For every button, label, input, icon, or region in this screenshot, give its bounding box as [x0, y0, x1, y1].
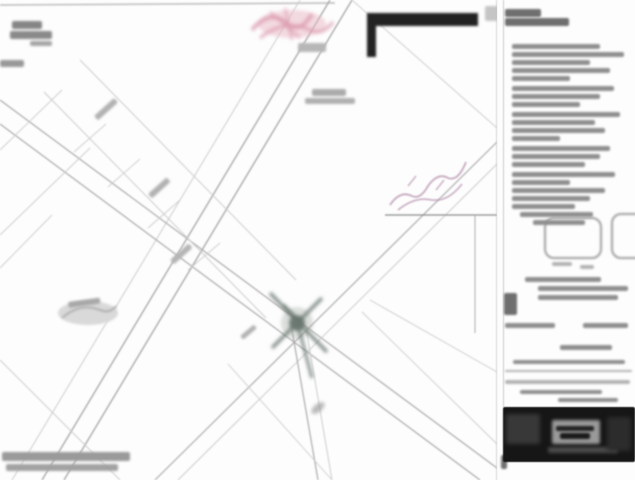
note-text-line [580, 265, 594, 269]
note-text-line [512, 154, 600, 159]
note-text-line [538, 286, 628, 291]
map-label-smudge [10, 31, 52, 39]
pink-annotation-scribble [390, 162, 466, 210]
map-line [44, 92, 266, 318]
map-line [0, 215, 52, 268]
map-line [0, 100, 497, 468]
note-text-line [520, 212, 593, 217]
map-line [0, 360, 120, 480]
note-text-line [583, 323, 628, 328]
note-text-line [513, 360, 625, 364]
map-line [0, 90, 62, 150]
north-corner-bracket [367, 13, 478, 57]
map-line [74, 124, 106, 152]
detail-outline-right [612, 214, 635, 258]
note-text-line [538, 295, 618, 300]
map-line [64, 0, 352, 480]
note-text-line [512, 172, 615, 177]
note-text-line [512, 120, 595, 125]
map-line [0, 3, 335, 5]
map-label-smudge [312, 89, 346, 96]
detail-outline-left [545, 218, 601, 258]
map-label-smudge [240, 324, 257, 339]
note-text-line [533, 220, 585, 225]
note-text-line [512, 180, 570, 185]
note-text-line [512, 68, 610, 73]
title-block [503, 407, 635, 462]
map-label-smudge [0, 60, 24, 67]
note-text-line [525, 277, 601, 282]
map-line [148, 200, 180, 228]
note-text-line [512, 52, 624, 57]
note-text-line [512, 112, 620, 117]
map-label-smudge [298, 43, 326, 52]
note-text-line [552, 262, 572, 266]
note-text-line [512, 128, 605, 133]
title-block-logo-number [560, 433, 590, 439]
map-line [108, 159, 140, 187]
map-label-smudge [12, 21, 42, 29]
scanned-plat-page [0, 0, 635, 480]
note-text-line [512, 102, 580, 107]
note-text-line [504, 293, 517, 315]
map-label-smudge [148, 177, 171, 198]
title-block-right-mark [607, 417, 631, 451]
title-block-logo-panel [552, 420, 600, 444]
note-text-line [505, 323, 555, 328]
note-text-line [520, 390, 602, 394]
title-block-logo-text [556, 426, 594, 431]
map-line [228, 364, 332, 480]
note-text-line [560, 345, 612, 350]
note-text-line [512, 204, 575, 209]
note-text-line [512, 196, 590, 201]
map-label-smudge [30, 41, 52, 46]
note-text-line [512, 76, 570, 81]
map-line [370, 300, 497, 372]
map-label-smudge [6, 464, 118, 471]
note-text-line [558, 398, 618, 402]
note-text-line [512, 136, 560, 141]
map-line [42, 0, 330, 480]
map-line [362, 312, 497, 444]
map-right-border [496, 0, 497, 480]
map-label-smudge [170, 243, 193, 264]
title-block-seal [506, 414, 540, 444]
road-junction-blob [270, 293, 327, 416]
note-text-line [505, 370, 632, 372]
note-text-line [512, 60, 590, 65]
note-text-line [512, 94, 600, 99]
note-text-line [505, 9, 541, 17]
map-label-smudge [2, 452, 130, 461]
parcel-and-road-lines [0, 0, 497, 480]
note-text-line [505, 380, 630, 384]
plat-map [0, 0, 497, 480]
note-text-line [512, 188, 605, 193]
note-text-line [512, 162, 585, 167]
note-text-line [512, 146, 610, 151]
map-label-smudge [94, 98, 118, 121]
note-text-line [512, 86, 614, 91]
note-text-line [512, 44, 600, 49]
note-text-line [505, 18, 569, 26]
map-label-smudge [305, 98, 355, 104]
notes-column-border [503, 0, 504, 407]
pink-highlighter-mark [252, 8, 333, 40]
